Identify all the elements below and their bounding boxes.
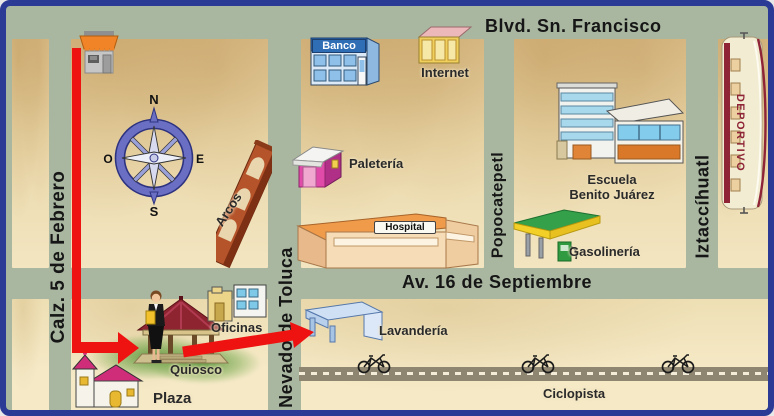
city-map: Blvd. Sn. Francisco Av. 16 de Septiembre… [0, 0, 774, 416]
woman-figure [141, 289, 171, 365]
route-arrows [6, 6, 774, 416]
